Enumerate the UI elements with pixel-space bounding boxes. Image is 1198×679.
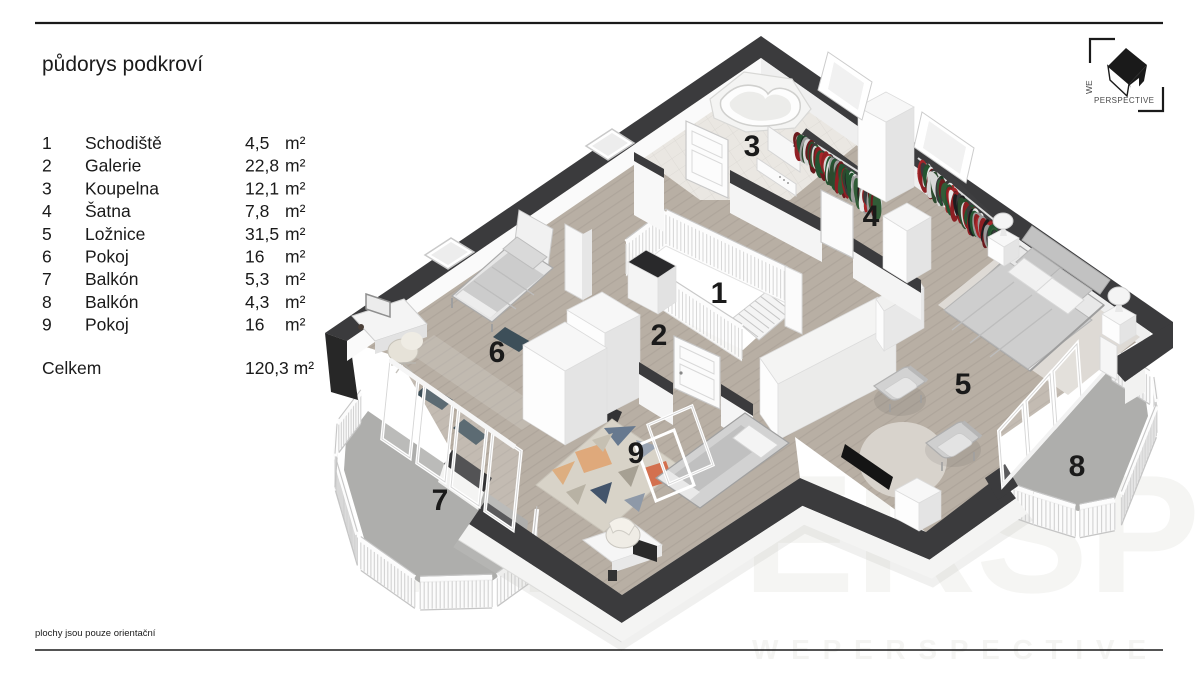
svg-text:7: 7 (42, 269, 52, 289)
svg-text:16: 16 (245, 315, 264, 335)
svg-text:PERSPECTIVE: PERSPECTIVE (1094, 96, 1154, 105)
svg-text:m²: m² (285, 224, 306, 244)
svg-text:Pokoj: Pokoj (85, 247, 129, 267)
svg-text:31,5: 31,5 (245, 224, 279, 244)
svg-text:5: 5 (955, 368, 972, 401)
svg-text:7: 7 (432, 484, 449, 517)
svg-text:3: 3 (42, 178, 52, 198)
svg-text:4: 4 (42, 201, 52, 221)
svg-text:WE: WE (1084, 80, 1094, 94)
svg-text:5,3: 5,3 (245, 269, 269, 289)
svg-text:2: 2 (651, 319, 668, 352)
svg-text:2: 2 (42, 156, 52, 176)
svg-text:1: 1 (711, 277, 728, 310)
svg-text:Schodiště: Schodiště (85, 133, 162, 153)
svg-text:8: 8 (42, 292, 52, 312)
svg-text:4,5: 4,5 (245, 133, 269, 153)
svg-text:m²: m² (285, 201, 306, 221)
svg-text:m²: m² (285, 315, 306, 335)
svg-text:Balkón: Balkón (85, 269, 139, 289)
svg-text:Ložnice: Ložnice (85, 224, 145, 244)
svg-text:8: 8 (1069, 450, 1086, 483)
svg-text:m²: m² (285, 292, 306, 312)
svg-text:m²: m² (285, 133, 306, 153)
svg-text:6: 6 (489, 336, 506, 369)
svg-text:Celkem: Celkem (42, 358, 101, 378)
svg-text:Galerie: Galerie (85, 156, 141, 176)
svg-text:m²: m² (285, 178, 306, 198)
svg-text:6: 6 (42, 247, 52, 267)
svg-text:Balkón: Balkón (85, 292, 139, 312)
svg-text:5: 5 (42, 224, 52, 244)
svg-text:3: 3 (744, 130, 761, 163)
svg-text:120,3 m²: 120,3 m² (245, 358, 314, 378)
svg-text:Šatna: Šatna (85, 200, 131, 221)
svg-text:9: 9 (628, 437, 645, 470)
svg-text:4,3: 4,3 (245, 292, 269, 312)
svg-text:půdorys podkroví: půdorys podkroví (42, 53, 203, 76)
svg-text:1: 1 (42, 133, 52, 153)
svg-text:22,8: 22,8 (245, 156, 279, 176)
svg-text:Pokoj: Pokoj (85, 315, 129, 335)
svg-text:7,8: 7,8 (245, 201, 269, 221)
svg-text:m²: m² (285, 269, 306, 289)
svg-text:4: 4 (863, 200, 880, 233)
svg-text:m²: m² (285, 156, 306, 176)
svg-text:16: 16 (245, 247, 264, 267)
svg-text:plochy jsou pouze orientační: plochy jsou pouze orientační (35, 628, 156, 639)
svg-text:12,1: 12,1 (245, 178, 279, 198)
svg-text:Koupelna: Koupelna (85, 178, 159, 198)
svg-text:m²: m² (285, 247, 306, 267)
svg-text:9: 9 (42, 315, 52, 335)
